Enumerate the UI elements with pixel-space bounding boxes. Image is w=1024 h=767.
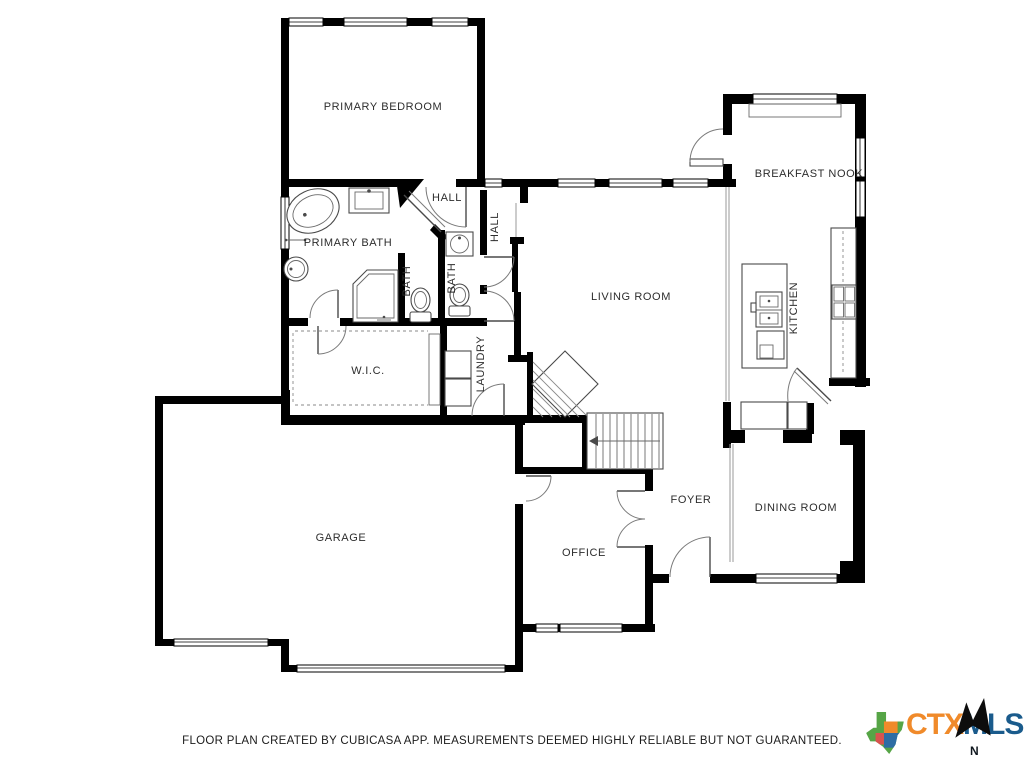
bath-sink: [446, 232, 473, 256]
room-label-breakfast-nook: BREAKFAST NOOK: [755, 168, 864, 180]
round-sink: [284, 257, 308, 281]
shower: [353, 270, 398, 322]
window: [753, 94, 837, 104]
staircase: [532, 351, 663, 469]
window: [560, 624, 622, 632]
garage-entry-door: [526, 476, 551, 501]
texas-icon: [866, 712, 904, 754]
compass-n-label: N: [970, 744, 979, 758]
base-cabinets: [741, 402, 807, 429]
window: [344, 18, 407, 26]
kitchen-island: [742, 264, 787, 368]
room-label-wic: W.I.C.: [351, 365, 385, 377]
room-label-kitchen: KITCHEN: [788, 282, 800, 334]
vanity-sink: [349, 188, 389, 213]
room-label-living-room: LIVING ROOM: [591, 291, 671, 303]
room-label-laundry: LAUNDRY: [475, 336, 487, 393]
washer: [445, 351, 471, 378]
room-label-hall-side: HALL: [489, 212, 501, 242]
window: [281, 197, 289, 249]
room-label-office: OFFICE: [562, 547, 606, 559]
room-label-hall-upper: HALL: [432, 192, 462, 204]
window: [558, 179, 595, 187]
window: [536, 624, 558, 632]
room-label-bath-inner: BATH: [401, 266, 413, 297]
floor-plan-page: PRIMARY BEDROOM HALL HALL PRIMARY BATH B…: [0, 0, 1024, 767]
front-door: [670, 537, 710, 577]
bath-door: [310, 290, 338, 318]
room-label-primary-bedroom: PRIMARY BEDROOM: [324, 101, 443, 113]
dryer: [445, 379, 471, 406]
toilet: [410, 288, 431, 322]
window: [289, 18, 323, 26]
floor-plan: PRIMARY BEDROOM HALL HALL PRIMARY BATH B…: [0, 0, 1024, 767]
office-french-doors: [617, 491, 645, 547]
room-label-primary-bath: PRIMARY BATH: [304, 237, 393, 249]
window: [756, 574, 837, 583]
bathtub: [280, 181, 347, 242]
room-label-bath-hall: BATH: [446, 263, 458, 294]
window: [673, 179, 708, 187]
hall-bath-door: [484, 257, 514, 287]
wic-door: [318, 326, 346, 354]
stove: [832, 285, 856, 319]
room-label-garage: GARAGE: [316, 532, 367, 544]
ctxmls-logo: CTXMLS N: [866, 700, 1018, 762]
window: [485, 179, 502, 187]
window: [609, 179, 662, 187]
window: [856, 181, 865, 217]
bay-sill: [749, 104, 841, 117]
hall-closet-door: [484, 291, 514, 321]
garage-door-window: [174, 639, 268, 646]
room-label-foyer: FOYER: [671, 494, 712, 506]
kitchen-dining-door: [788, 368, 831, 404]
breakfast-exterior-door: [690, 129, 723, 166]
room-label-dining-room: DINING ROOM: [755, 502, 837, 514]
compass-north-icon: [954, 698, 992, 740]
window: [432, 18, 468, 26]
garage-door-window: [297, 665, 505, 672]
